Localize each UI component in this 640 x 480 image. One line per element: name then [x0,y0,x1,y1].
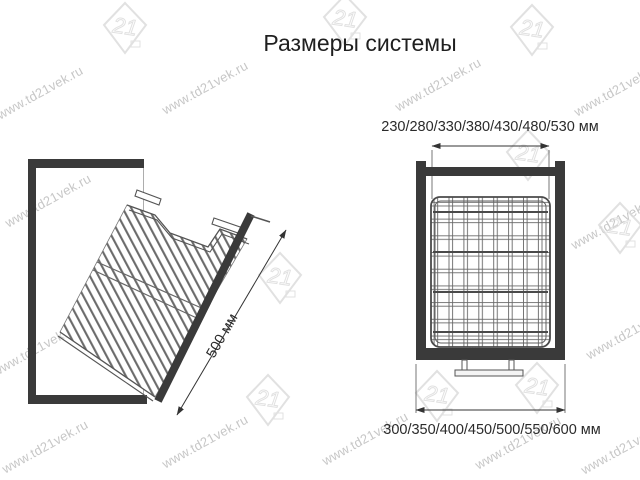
top-dimension-label: 230/280/330/380/430/480/530 мм [381,119,599,135]
dimension-label-500: 500 мм [204,311,242,361]
dimensions-drawing: 500 мм 230/280/330/380/430/480/530 мм [0,0,640,480]
screenshot-root: www.td21vek.ruwww.td21vek.ruwww.td21vek.… [0,0,640,480]
left-diagram: 500 мм [28,159,286,415]
right-diagram: 230/280/330/380/430/480/530 мм [381,119,601,438]
page-title: Размеры системы [263,30,456,57]
tilted-basket [58,190,249,401]
basket-tab-left [135,190,161,205]
pedestal-mount [455,360,523,376]
bottom-dimension-label: 300/350/400/450/500/550/600 мм [383,422,601,438]
wire-basket-front [431,197,550,347]
basket-wires [60,205,247,397]
